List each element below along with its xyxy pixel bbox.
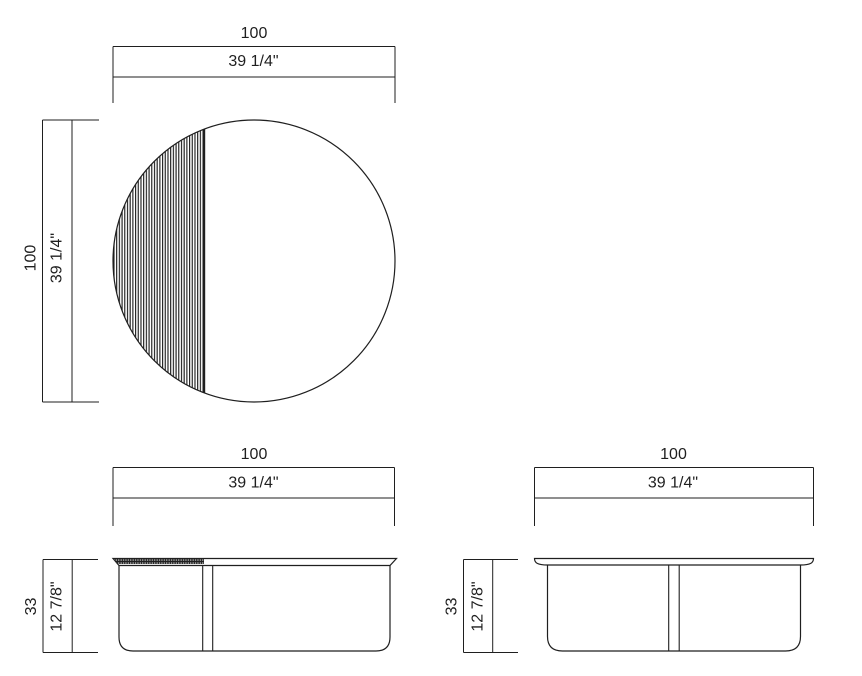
top-view-height-dimension: 100 39 1/4" [23, 120, 100, 402]
front-view-height-dimension: 33 12 7/8" [23, 560, 98, 653]
height-inch-label: 12 7/8" [49, 581, 66, 631]
height-inch-label: 39 1/4" [49, 233, 66, 283]
base-frame [119, 566, 390, 652]
front-elevation [113, 559, 397, 652]
height-inch-label: 12 7/8" [470, 581, 487, 631]
height-cm-label: 33 [444, 598, 461, 616]
technical-drawing: 100 39 1/4" 100 39 1/4" 100 39 1/4" [0, 0, 862, 676]
tabletop-slab [535, 559, 814, 566]
side-view-width-dimension: 100 39 1/4" [535, 446, 814, 526]
side-elevation [535, 559, 814, 652]
height-cm-label: 33 [23, 598, 40, 616]
side-view: 100 39 1/4" 33 12 7/8" [444, 446, 814, 653]
top-view-width-dimension: 100 39 1/4" [113, 25, 395, 103]
width-inch-label: 39 1/4" [648, 475, 698, 492]
table-top-outline [113, 120, 395, 402]
front-view-width-dimension: 100 39 1/4" [113, 446, 395, 526]
width-inch-label: 39 1/4" [228, 53, 278, 70]
width-cm-label: 100 [660, 446, 687, 463]
side-view-height-dimension: 33 12 7/8" [444, 560, 519, 653]
knurled-edge-texture [113, 559, 204, 564]
drawing-sheet: 100 39 1/4" 100 39 1/4" 100 39 1/4" [0, 0, 862, 676]
width-cm-label: 100 [241, 25, 268, 42]
hatched-segment [113, 129, 204, 393]
height-cm-label: 100 [23, 245, 40, 272]
top-view: 100 39 1/4" 100 39 1/4" [23, 25, 396, 402]
width-inch-label: 39 1/4" [228, 475, 278, 492]
base-frame [548, 565, 801, 651]
width-cm-label: 100 [241, 446, 268, 463]
front-view: 100 39 1/4" 33 12 7/8" [23, 446, 397, 653]
